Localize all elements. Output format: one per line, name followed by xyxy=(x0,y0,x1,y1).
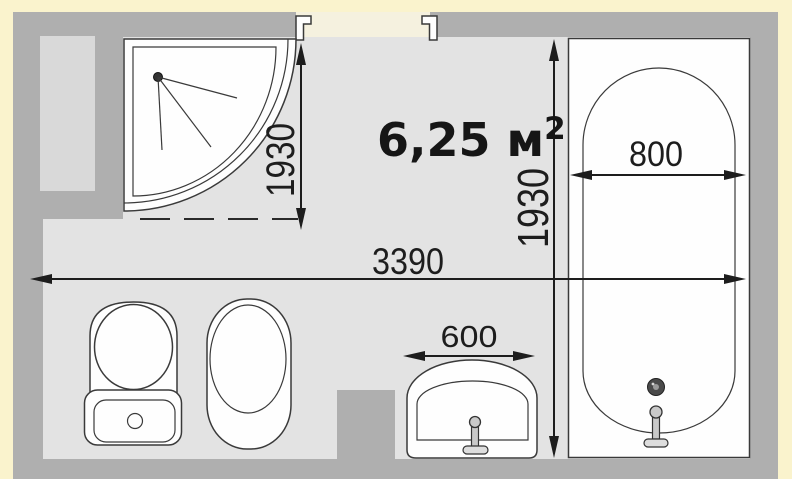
washbasin xyxy=(407,360,537,458)
wall-bottom xyxy=(13,459,778,479)
drain-highlight xyxy=(652,383,655,386)
area-label: 6,25 м2 xyxy=(377,111,566,167)
faucet-head xyxy=(650,406,662,418)
wall-niche xyxy=(40,36,95,191)
wall-pier xyxy=(337,390,395,459)
dim-sink-width-label: 600 xyxy=(441,319,498,354)
wall-right xyxy=(750,12,778,479)
toilet-bowl xyxy=(95,305,173,390)
doorway-opening xyxy=(296,12,430,37)
bathroom-floor-plan: 3390 1930 1930 800 600 6,25 м2 xyxy=(0,0,792,479)
dim-bathtub-width-label: 800 xyxy=(629,135,683,174)
floor-plan-drawing: 3390 1930 1930 800 600 6,25 м2 xyxy=(0,0,792,479)
dim-room-depth-label: 1930 xyxy=(509,168,558,248)
faucet-stem xyxy=(472,427,479,447)
area-label-superscript: 2 xyxy=(544,111,566,147)
toilet xyxy=(85,302,182,445)
bidet-body xyxy=(207,299,291,449)
area-label-value: 6,25 м xyxy=(377,113,544,167)
dim-shower-depth-label: 1930 xyxy=(259,123,303,197)
bathtub-drain-icon xyxy=(648,379,665,396)
faucet-stem xyxy=(653,417,660,439)
faucet-base xyxy=(644,439,668,447)
faucet-base xyxy=(463,446,488,454)
bathtub xyxy=(569,39,750,458)
dim-room-width-label: 3390 xyxy=(372,241,444,282)
toilet-tank xyxy=(85,390,182,445)
wall-top-right xyxy=(430,12,778,37)
faucet-head xyxy=(470,417,481,428)
bidet xyxy=(207,299,291,449)
